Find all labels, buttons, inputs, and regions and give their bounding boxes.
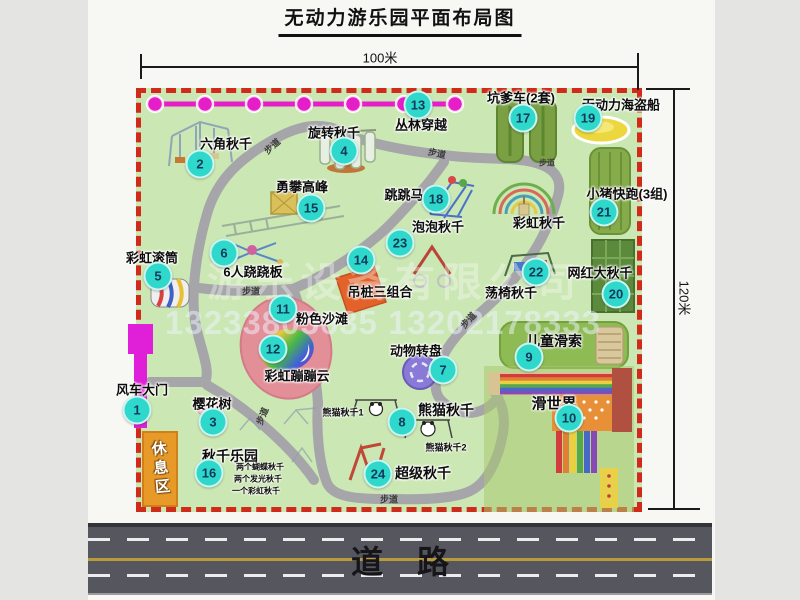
- poi-badge-11: 11: [269, 295, 298, 324]
- poi-label-20: 网红大秋千: [567, 263, 632, 282]
- page-title: 无动力游乐园平面布局图: [278, 3, 521, 37]
- poi-label-23: 泡泡秋千: [412, 217, 464, 236]
- poi-badge-24: 24: [364, 460, 393, 489]
- poi-badge-18: 18: [422, 185, 451, 214]
- playground-map-screenshot: 无动力游乐园平面布局图: [0, 0, 800, 600]
- poi-badge-10: 10: [555, 404, 584, 433]
- map-note-label: 步道: [242, 285, 260, 298]
- poi-badge-6: 6: [210, 239, 239, 268]
- width-dimension-label: 100米: [363, 48, 398, 67]
- poi-badge-20: 20: [602, 280, 631, 309]
- poi-label-14: 吊桩三组合: [347, 282, 412, 301]
- poi-label-7: 动物转盘: [390, 341, 442, 360]
- map-note-label: 步道: [539, 158, 555, 169]
- map-note-label: 两个发光秋千: [234, 474, 282, 485]
- map-note-label: 一个彩虹秋千: [232, 486, 280, 497]
- road-label: 道路: [317, 537, 483, 583]
- poi-badge-12: 12: [259, 335, 288, 364]
- height-dimension-label: 120米: [676, 281, 695, 316]
- poi-label-11: 粉色沙滩: [296, 309, 348, 328]
- poi-badge-7: 7: [429, 356, 458, 385]
- poi-badge-15: 15: [297, 194, 326, 223]
- poi-label-18: 跳跳马: [384, 185, 423, 204]
- poi-label-24: 超级秋千: [395, 463, 451, 483]
- poi-badge-2: 2: [186, 150, 215, 179]
- poi-badge-21: 21: [590, 198, 619, 227]
- poi-badge-19: 19: [574, 104, 603, 133]
- map-note-label: 步道: [380, 493, 398, 506]
- poi-label-22: 荡椅秋千: [485, 283, 537, 302]
- map-note-label: 两个蝴蝶秋千: [236, 462, 284, 473]
- poi-badge-3: 3: [199, 408, 228, 437]
- map-note-label: 熊猫秋千2: [425, 441, 466, 454]
- poi-badge-22: 22: [522, 258, 551, 287]
- road: 道路: [88, 523, 712, 595]
- poi-badge-16: 16: [195, 459, 224, 488]
- poi-badge-14: 14: [347, 246, 376, 275]
- poi-badge-13: 13: [404, 91, 433, 120]
- poi-label-15: 勇攀高峰: [276, 177, 328, 196]
- poi-badge-17: 17: [509, 104, 538, 133]
- poi-label-8: 熊猫秋千: [418, 400, 474, 420]
- poi-badge-9: 9: [515, 343, 544, 372]
- poi-badge-4: 4: [330, 137, 359, 166]
- poi-badge-1: 1: [123, 396, 152, 425]
- map-note-label: 熊猫秋千1: [322, 406, 363, 419]
- poi-label-2: 六角秋千: [200, 134, 252, 153]
- poi-badge-8: 8: [388, 408, 417, 437]
- poi-label-12: 彩虹蹦蹦云: [264, 366, 329, 385]
- poi-badge-23: 23: [386, 229, 415, 258]
- map-note-label: 彩虹秋千: [513, 213, 565, 232]
- poi-badge-5: 5: [144, 262, 173, 291]
